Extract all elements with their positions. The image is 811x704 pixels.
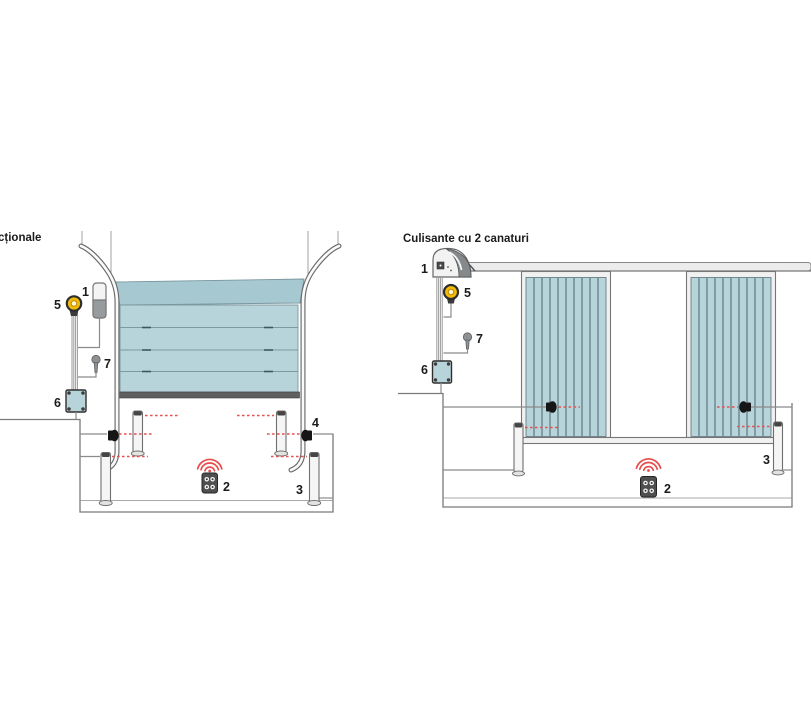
callout-key-selector: 7 — [476, 332, 483, 346]
photocell-post-inner-right — [275, 411, 288, 456]
callout-control-box: 6 — [54, 396, 61, 410]
control-cable — [437, 277, 442, 361]
callout-motor: 1 — [82, 285, 89, 299]
callout-flashing-lamp: 5 — [464, 286, 471, 300]
callout-flashing-lamp: 5 — [54, 298, 61, 312]
callout-key-selector: 7 — [104, 357, 111, 371]
page-background: cționale — [0, 0, 811, 704]
control-box — [66, 390, 86, 420]
remote-control — [198, 459, 222, 493]
callout-remote: 2 — [223, 480, 230, 494]
leaf-photocell-left — [546, 401, 557, 413]
photocell-post-left — [513, 423, 525, 476]
callout-remote: 2 — [664, 482, 671, 496]
remote-control — [636, 459, 660, 497]
sliding-door-leaf-left — [522, 272, 611, 438]
sectional-door-panel — [114, 279, 304, 398]
sliding-door-diagram: Culisante cu 2 canaturi — [398, 233, 811, 507]
wall-photocell-left — [108, 430, 119, 442]
wall-photocell-right — [301, 430, 312, 442]
photocell-post-outer-left — [99, 453, 112, 506]
callout-photocell-post: 3 — [763, 453, 770, 467]
control-cable — [72, 312, 77, 390]
photocell-post-outer-right — [308, 453, 321, 506]
control-box — [433, 361, 452, 394]
flashing-lamp — [67, 296, 81, 316]
right-diagram-title: Culisante cu 2 canaturi — [403, 233, 529, 245]
motor-unit — [433, 248, 471, 277]
key-selector — [78, 355, 100, 377]
sectional-door-diagram: cționale — [0, 231, 339, 512]
door-bottom-seal — [118, 392, 300, 398]
callout-photocell-post: 3 — [296, 483, 303, 497]
photocell-post-right — [772, 422, 784, 475]
diagram-canvas: cționale — [0, 0, 811, 704]
flashing-lamp — [444, 285, 459, 317]
guide-rail — [466, 262, 811, 271]
bottom-guide-bar — [522, 438, 776, 444]
callout-control-box: 6 — [421, 363, 428, 377]
leaf-photocell-right — [739, 401, 751, 413]
key-selector — [444, 333, 472, 353]
callout-wall-photocell: 4 — [312, 416, 319, 430]
left-diagram-title: cționale — [0, 232, 41, 244]
sliding-door-leaf-right — [687, 272, 776, 438]
ceiling-suspension-lines — [82, 231, 338, 279]
photocell-post-inner-left — [131, 411, 144, 456]
callout-motor: 1 — [421, 262, 428, 276]
